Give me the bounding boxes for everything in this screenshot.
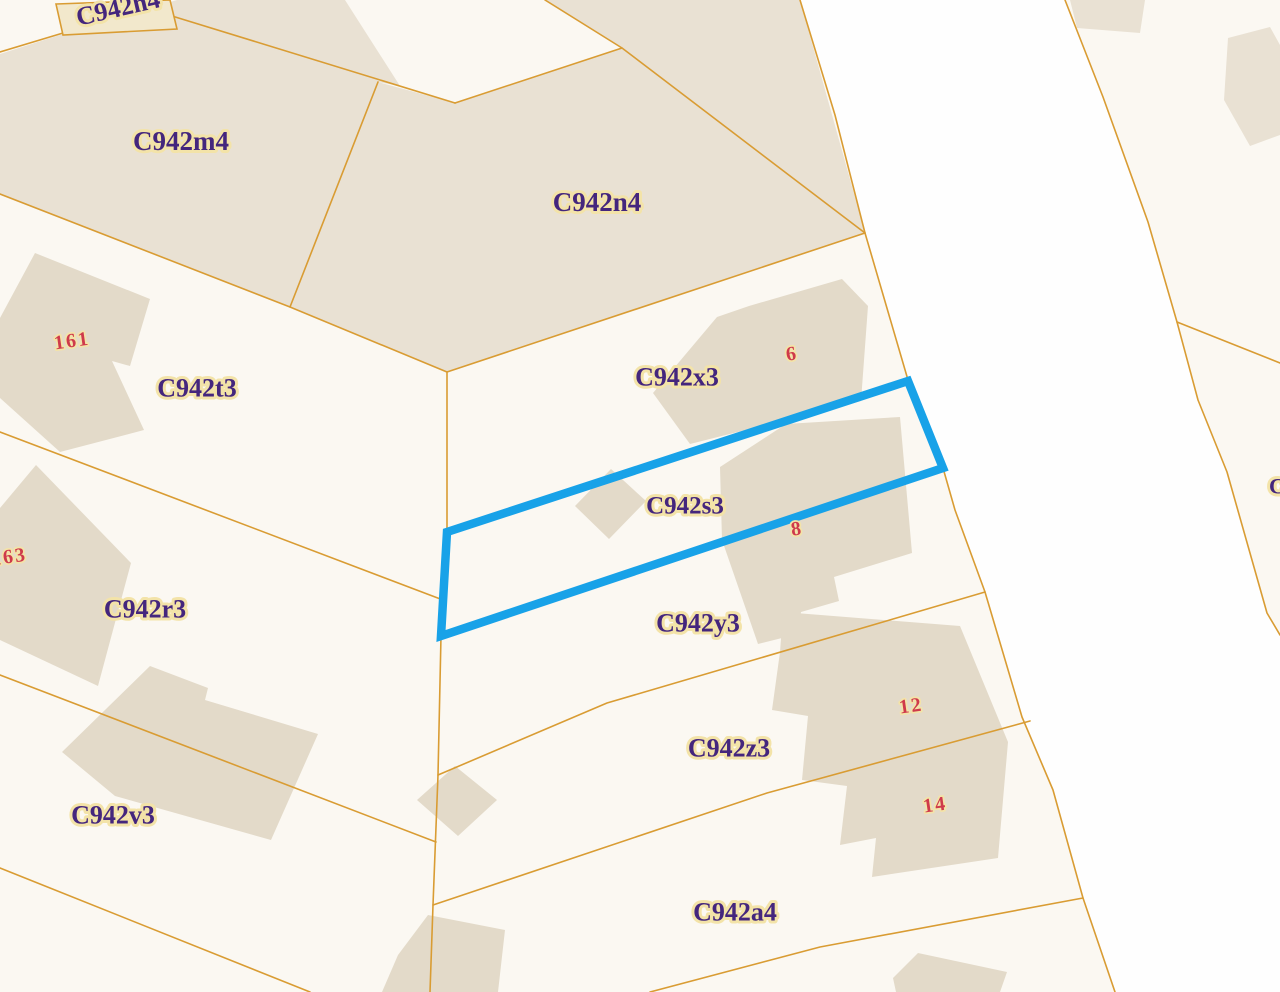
parcel-label-C942s3: C942s3 [646, 493, 724, 520]
parcel-label-C942m4: C942m4 [133, 126, 229, 156]
house-number-12: 12 [898, 693, 925, 718]
parcel-label-C: C [1269, 474, 1280, 499]
house-number-14: 14 [922, 792, 949, 817]
cadastral-map[interactable]: C942h4C942m4C942n4C942t3C942x3C942s3C942… [0, 0, 1280, 992]
parcel-label-C942y3: C942y3 [656, 609, 740, 638]
parcel-label-C942n4: C942n4 [553, 187, 642, 217]
parcel-label-C942v3: C942v3 [71, 801, 155, 830]
parcel-label-C942x3: C942x3 [635, 363, 719, 392]
map-viewport[interactable]: C942h4C942m4C942n4C942t3C942x3C942s3C942… [0, 0, 1280, 992]
parcel-label-C942r3: C942r3 [104, 595, 186, 624]
parcel-label-C942a4: C942a4 [693, 898, 777, 927]
parcel-fill-topright-small[interactable] [1070, 0, 1145, 33]
parcel-label-C942z3: C942z3 [688, 734, 770, 763]
parcel-label-C942t3: C942t3 [157, 374, 236, 403]
